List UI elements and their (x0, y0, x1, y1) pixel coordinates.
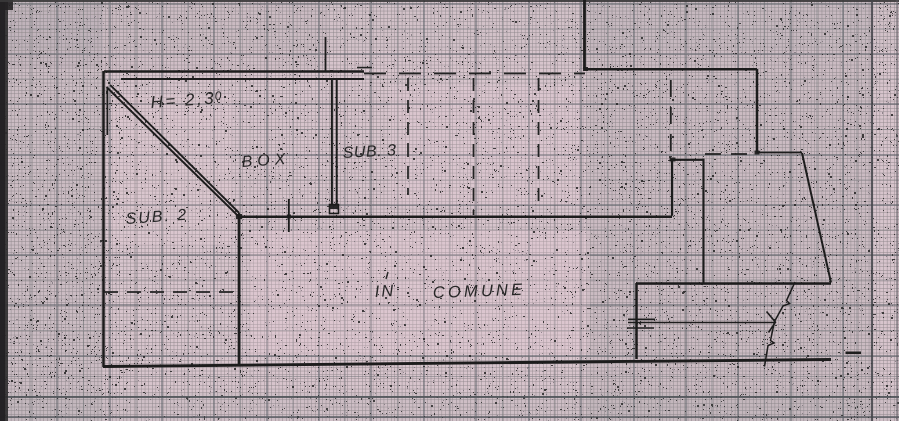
svg-text:SUB. 3: SUB. 3 (342, 142, 397, 162)
svg-text:0: 0 (214, 89, 222, 103)
svg-text:IN: IN (374, 282, 395, 301)
svg-text:COMUNE: COMUNE (433, 281, 526, 302)
svg-text:BOX: BOX (241, 151, 291, 171)
